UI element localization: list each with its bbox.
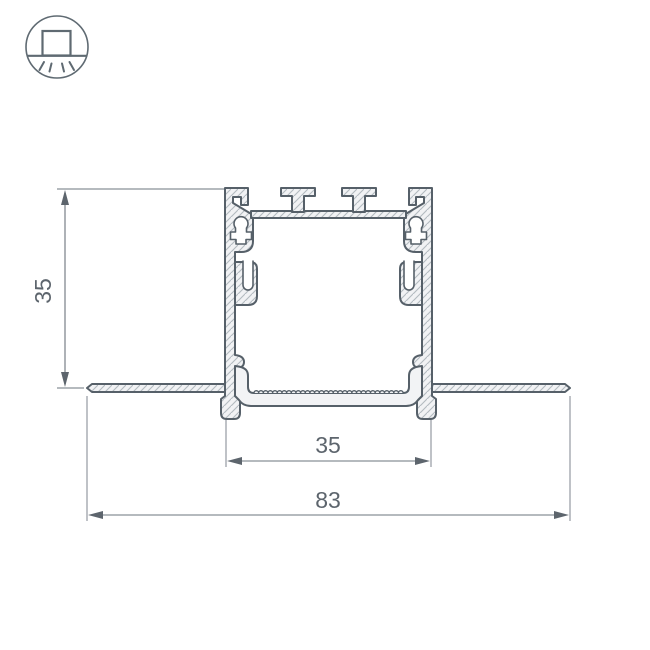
height-arrow-top [61,190,69,205]
height-arrow-bottom [61,372,69,387]
height-dim-label: 35 [30,278,56,304]
screw-channel-slot-left [243,261,253,290]
icon-profile-box [43,31,71,56]
dimension-lines [57,189,570,521]
drawing-page: 35 35 83 [0,0,650,650]
t-post-left [281,188,315,212]
wing-right [432,384,570,392]
overall-width-dim-label: 83 [315,487,341,513]
body-width-dim-label: 35 [315,432,341,458]
wing-left [87,384,225,392]
overall-width-arrow-left [88,511,103,519]
overall-width-arrow-right [554,511,569,519]
profile-cross-section [87,188,570,419]
tray-serration [254,391,403,393]
dimension-arrows [61,190,569,519]
t-post-right [342,188,376,212]
icon-circle [26,16,88,78]
diffuser-tray [235,366,422,406]
recessed-mounting-icon [26,16,88,78]
body-width-arrow-right [415,457,430,465]
body-width-arrow-left [227,457,242,465]
icon-light-rays [40,62,75,72]
screw-channel-slot-right [404,261,414,290]
technical-drawing-canvas: 35 35 83 [0,0,650,650]
top-plate [251,211,406,218]
